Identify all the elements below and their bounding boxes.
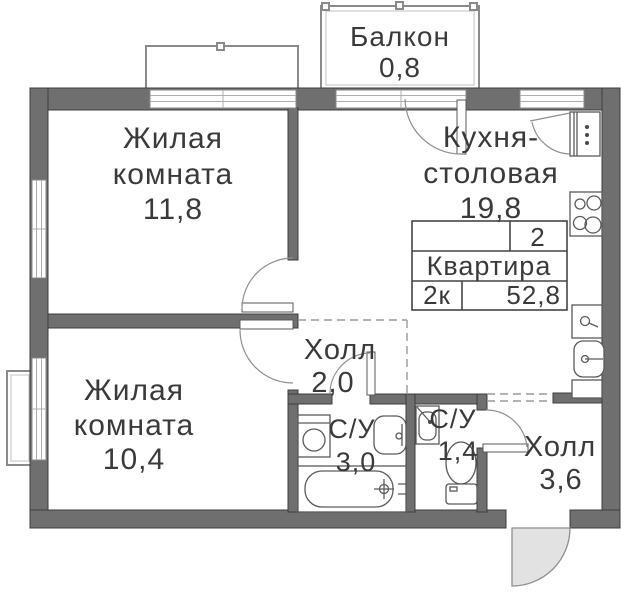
wall-bath2-hall2-top — [477, 394, 487, 410]
label-kitchen-line1: Кухня- — [443, 121, 539, 154]
label-kitchen-line2: столовая — [423, 157, 559, 190]
bath1-sink — [374, 416, 406, 454]
label-bath2: С/У — [429, 404, 476, 434]
wall-right — [602, 88, 620, 528]
wall-bath2-hall2-bottom — [477, 448, 487, 512]
legend-plan-type: 2к — [423, 280, 451, 310]
window-kitchen-top — [520, 90, 584, 108]
label-bath1: С/У — [328, 414, 375, 444]
window-balcony-door — [336, 90, 466, 108]
label-living2-line2: комната — [74, 409, 194, 442]
door-living2 — [240, 320, 293, 383]
washing-machine — [298, 415, 330, 457]
stove — [570, 192, 602, 236]
bay-window-box-top — [146, 43, 298, 90]
wall-living1-kitchen — [288, 108, 298, 260]
wall-bottom-right — [570, 510, 620, 528]
legend-label: Квартира — [427, 251, 552, 281]
window-living1-left — [32, 180, 46, 278]
balcony-corner-mark — [322, 3, 329, 10]
door-bath2 — [483, 410, 528, 452]
door-living1-arc — [242, 258, 293, 309]
label-hall2-area: 3,6 — [539, 464, 582, 496]
wall-bath1-bath2 — [406, 394, 415, 512]
wall-left — [30, 88, 48, 528]
label-hall1-area: 2,0 — [311, 367, 354, 399]
label-hall1: Холл — [304, 334, 376, 366]
bay-corner-mark — [217, 43, 224, 50]
window-living1-top — [150, 90, 296, 108]
fridge-dot — [585, 141, 589, 145]
door-bath2-leaf — [483, 444, 528, 452]
counter-cabinet — [572, 305, 602, 338]
door-living2-leaf — [240, 320, 293, 329]
fridge-dot — [585, 125, 589, 129]
door-living1 — [242, 258, 293, 312]
window-living2-left — [32, 358, 46, 460]
door-bath2-arc — [486, 410, 527, 447]
balcony-corner-mark — [470, 3, 477, 10]
wall-living2-bath — [288, 390, 298, 512]
balcony-corner-mark — [396, 2, 403, 9]
label-hall2: Холл — [524, 431, 596, 463]
label-living2-line1: Жилая — [84, 374, 184, 407]
bay-window-box-left — [7, 371, 33, 465]
door-living1-leaf — [242, 303, 293, 312]
label-kitchen-area: 19,8 — [460, 192, 522, 225]
label-living1-line1: Жилая — [123, 122, 223, 155]
door-living2-arc — [240, 330, 293, 383]
fridge-dot — [585, 133, 589, 137]
label-bath2-area: 1,4 — [438, 436, 479, 466]
label-living1-area: 11,8 — [143, 193, 203, 226]
wall-bath-top — [370, 394, 487, 404]
floor-plan-svg: 2 Квартира 2к 52,8 — [0, 0, 630, 600]
legend-total-area: 52,8 — [506, 280, 561, 310]
entrance-door — [512, 528, 570, 586]
counter-cabinet-2 — [572, 380, 602, 398]
label-living1-line2: комната — [113, 158, 233, 191]
label-balcony: Балкон — [350, 21, 450, 52]
fridge — [530, 112, 600, 156]
fridge-door-leaf — [530, 113, 570, 121]
floor-plan: 2 Квартира 2к 52,8 — [0, 0, 630, 600]
label-living2-area: 10,4 — [103, 443, 165, 476]
entrance-door-swing — [512, 528, 570, 586]
legend-table: 2 Квартира 2к 52,8 — [412, 221, 567, 310]
bay-outline — [146, 46, 298, 90]
kitchen-counter — [572, 305, 604, 398]
label-bath1-area: 3,0 — [336, 447, 377, 477]
label-balcony-area: 0,8 — [379, 52, 421, 83]
legend-rooms-count: 2 — [530, 222, 545, 252]
wall-bottom-left — [30, 510, 506, 528]
